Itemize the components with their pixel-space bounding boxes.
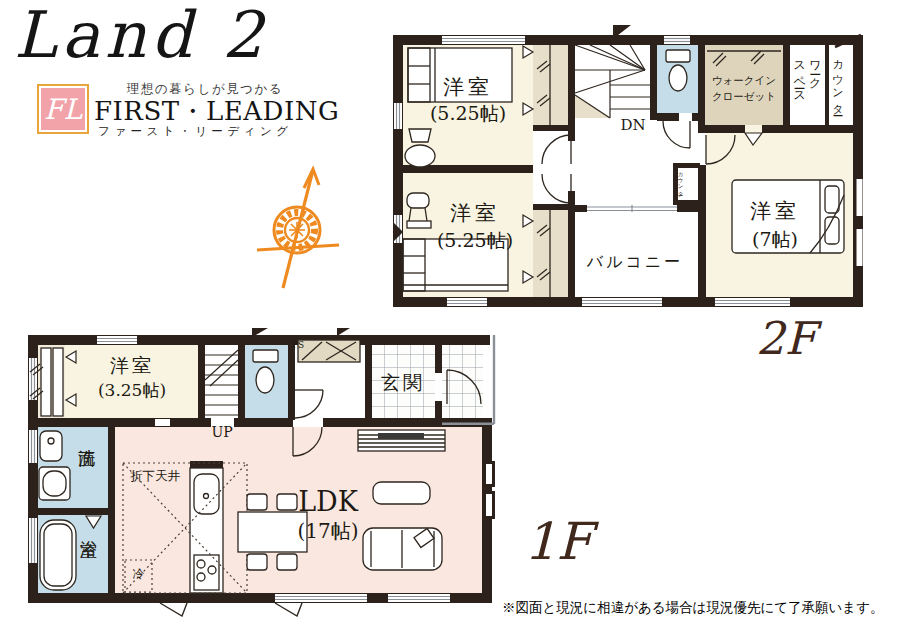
ldk-label: LDK [268,486,388,518]
floor-label-1f: 1F [524,512,592,571]
room-label-bedroom-a: 洋室 [418,75,518,100]
pipe-space-label: PS [288,340,308,351]
bathroom-label: 浴室 [78,526,101,586]
workspace-label: ワーク スペース [791,53,822,145]
disclaimer-text: ※図面と現況に相違がある場合は現況優先にて了承願います。 [502,599,883,617]
logo-brand-kana: ファースト・リーディング [98,124,292,139]
stairs-up-label: UP [204,424,240,441]
floor-plan-1f: 洋室 (3.25帖) UP PS 玄関 洗面 浴室 LDK (17帖) 折下天井… [20,328,510,628]
room-size-bedroom-1f: (3.25帖) [62,380,202,400]
room-label-bedroom-c: 洋室 [725,199,825,224]
wic-line1: ウォークイン [712,74,776,86]
logo-fl-badge: FL [37,84,89,134]
fl-monogram-icon: FL [41,88,85,130]
workspace-line2: スペース [793,53,807,98]
room-label-bedroom-1f: 洋室 [82,354,182,377]
walk-in-closet-label: ウォークイン クローゼット [693,72,795,105]
counter-niche-label: カウンター [678,168,685,200]
logo-title: Land 2 [14,2,268,69]
stairs-down-label: DN [611,116,655,134]
workspace-line1: ワーク [808,53,822,83]
compass-icon [238,156,358,296]
floor-label-2f: 2F [756,312,816,365]
fridge-label: 冷 [125,567,152,581]
balcony-label: バルコニー [565,252,705,271]
floorplan-page: Land 2 FL 理想の暮らしが見つかる FIRST・LEADING ファース… [0,0,900,635]
entrance-label: 玄関 [363,371,443,394]
room-label-bedroom-b: 洋室 [425,201,525,226]
room-size-bedroom-a: (5.25帖) [398,102,538,125]
counter-label: カウンター [829,52,844,144]
dropped-ceiling-label: 折下天井 [124,468,186,483]
wic-line2: クローゼット [712,90,776,102]
room-size-bedroom-c: (7帖) [725,228,825,251]
washroom-label: 洗面 [76,436,99,496]
floor-plan-2f: 洋室 (5.25帖) 洋室 (5.25帖) 洋室 (7帖) ウォークイン クロー… [385,25,863,315]
ldk-size-label: (17帖) [268,519,388,543]
room-size-bedroom-b: (5.25帖) [405,229,545,252]
